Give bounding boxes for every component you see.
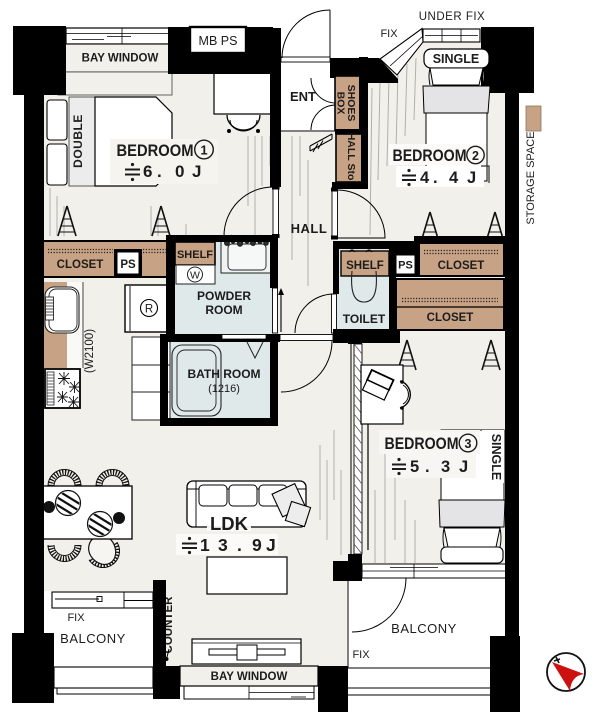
svg-text:(1216): (1216) <box>208 383 240 395</box>
svg-text:SINGLE: SINGLE <box>433 52 480 66</box>
svg-text:R: R <box>145 304 153 316</box>
svg-text:DOUBLE: DOUBLE <box>71 114 85 168</box>
svg-text:TOILET: TOILET <box>343 312 386 326</box>
svg-text:SHELF: SHELF <box>177 249 213 261</box>
svg-text:BAY WINDOW: BAY WINDOW <box>82 53 159 65</box>
svg-text:2: 2 <box>472 149 479 163</box>
svg-text:BAY WINDOW: BAY WINDOW <box>211 671 288 683</box>
svg-text:CLOSET: CLOSET <box>427 312 474 324</box>
svg-text:BEDROOM: BEDROOM <box>393 147 467 165</box>
svg-text:ROOM: ROOM <box>205 303 242 317</box>
svg-text:FIX: FIX <box>352 649 370 661</box>
svg-text:BATH ROOM: BATH ROOM <box>187 367 260 381</box>
svg-text:1: 1 <box>200 143 207 158</box>
svg-text:LDK: LDK <box>210 513 249 534</box>
svg-text:POWDER: POWDER <box>197 289 251 303</box>
svg-text:FIX: FIX <box>380 28 398 40</box>
svg-text:4.4J: 4.4J <box>420 169 476 187</box>
svg-text:3: 3 <box>465 437 472 451</box>
svg-text:W: W <box>190 270 200 282</box>
svg-text:CLOSET: CLOSET <box>57 259 104 271</box>
svg-text:BEDROOM: BEDROOM <box>385 435 459 453</box>
svg-text:PS: PS <box>120 259 136 271</box>
svg-text:SINGLE: SINGLE <box>489 434 503 481</box>
svg-text:BALCONY: BALCONY <box>60 631 126 646</box>
svg-text:STORAGE SPACE: STORAGE SPACE <box>525 131 537 224</box>
svg-text:CLOSET: CLOSET <box>438 260 485 272</box>
svg-text:HALL Sto.: HALL Sto. <box>345 133 357 184</box>
svg-text:ENT: ENT <box>290 89 316 104</box>
svg-text:BALCONY: BALCONY <box>391 621 457 636</box>
svg-text:SHELF: SHELF <box>346 260 384 272</box>
svg-text:UNDER FIX: UNDER FIX <box>419 11 485 23</box>
svg-text:(W2100): (W2100) <box>84 329 96 373</box>
svg-text:PS: PS <box>398 260 413 272</box>
svg-text:MB PS: MB PS <box>199 34 238 48</box>
svg-text:HALL: HALL <box>291 221 328 236</box>
svg-text:FIX: FIX <box>67 612 85 624</box>
svg-text:BEDROOM: BEDROOM <box>117 141 194 160</box>
